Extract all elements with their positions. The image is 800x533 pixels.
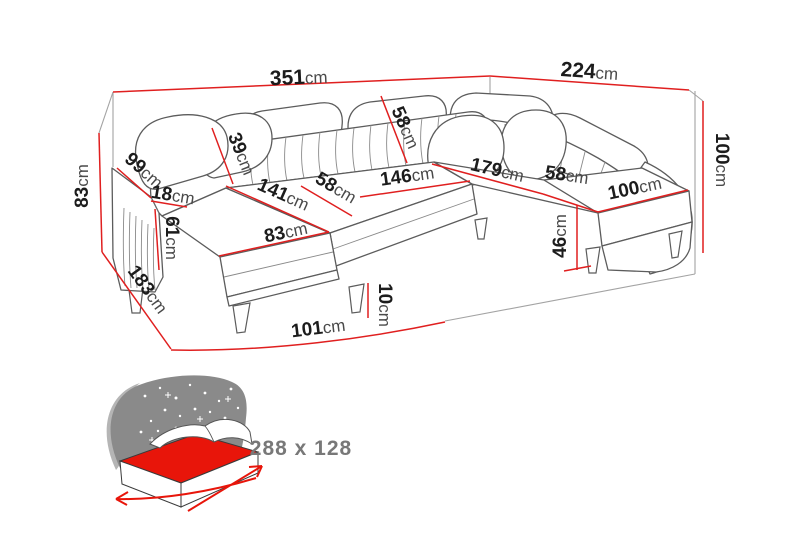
dim-label-leg-height: 10cm <box>374 283 395 327</box>
leg-chaise-right <box>349 284 364 313</box>
dim-label-armrest-front-height: 61cm <box>161 216 182 260</box>
dim-label-back-height-left: 83cm <box>72 164 93 208</box>
dim-line-back-height-left <box>99 133 102 252</box>
dim-label-total-depth: 224cm <box>560 58 619 85</box>
bed-size-label: 288 x 128 <box>250 437 352 460</box>
dim-label-total-width: 351cm <box>269 65 328 90</box>
dim-label-seat-front-height: 46cm <box>550 214 571 258</box>
sofa-dimension-diagram: 351cm 224cm 83cm 99cm 18cm 61cm 39cm 141… <box>0 0 800 533</box>
leg-right-front <box>586 247 600 273</box>
bed-icon: 288 x 128 <box>107 375 353 511</box>
leg-chaise-front <box>233 303 250 333</box>
dim-label-front-width-left: 101cm <box>290 315 347 342</box>
leg-center <box>475 218 487 239</box>
room-floor-right <box>445 274 695 321</box>
room-right-connector <box>689 90 703 101</box>
room-left-connector <box>99 92 113 133</box>
dim-label-back-height-right: 100cm <box>711 133 732 187</box>
